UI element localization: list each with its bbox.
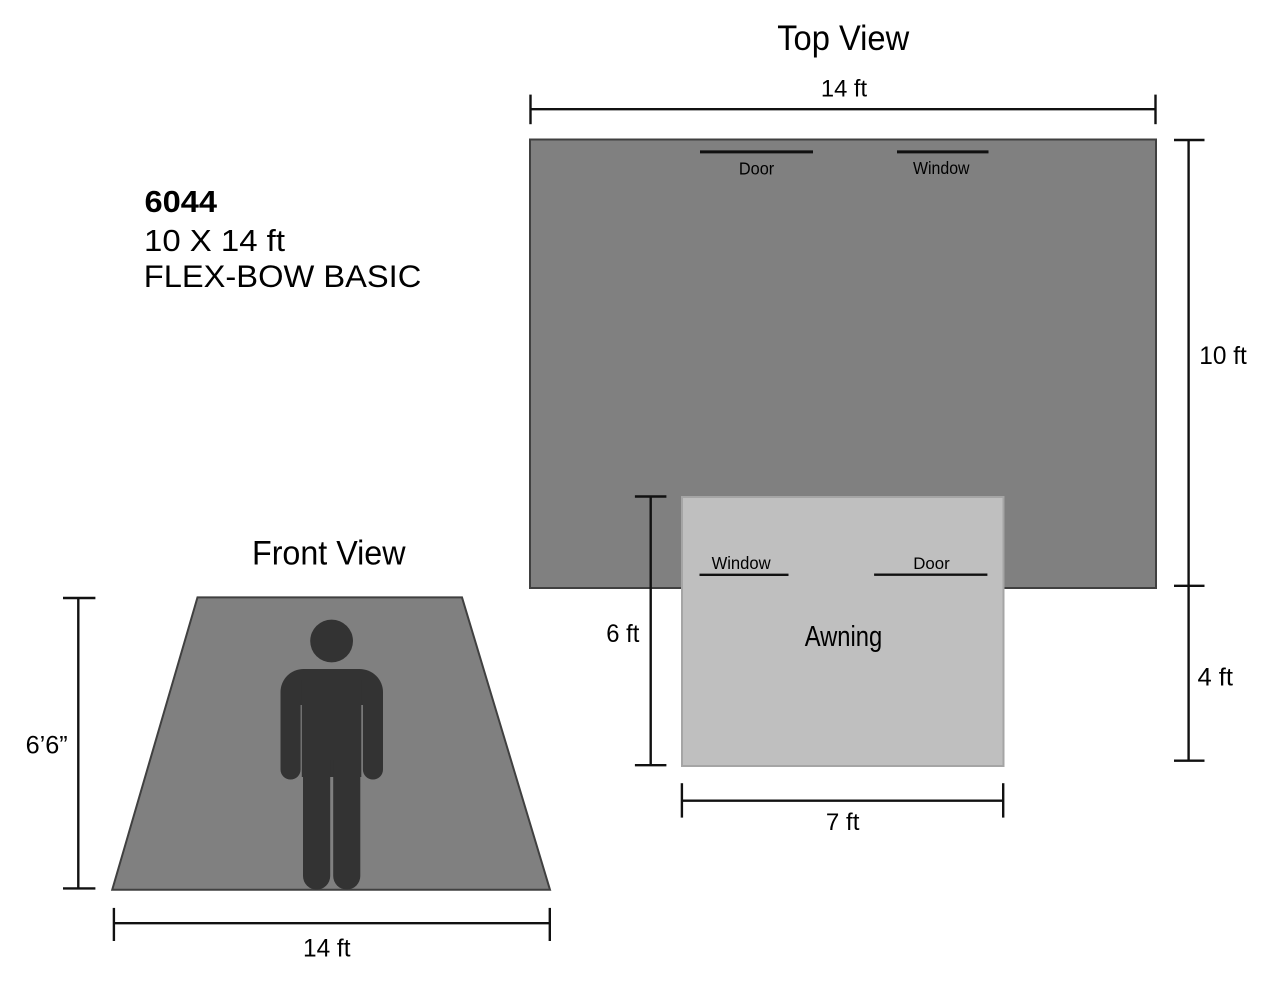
svg-text:Top View: Top View bbox=[777, 18, 909, 58]
svg-text:4 ft: 4 ft bbox=[1198, 665, 1234, 692]
svg-text:6 ft: 6 ft bbox=[606, 621, 639, 648]
svg-text:10 ft: 10 ft bbox=[1199, 343, 1247, 370]
svg-text:14 ft: 14 ft bbox=[303, 934, 351, 962]
svg-text:Front View: Front View bbox=[252, 535, 406, 573]
svg-text:7 ft: 7 ft bbox=[826, 809, 860, 836]
svg-text:10 X 14 ft: 10 X 14 ft bbox=[144, 224, 286, 258]
svg-text:6’6”: 6’6” bbox=[26, 732, 68, 760]
svg-text:Window: Window bbox=[913, 158, 970, 178]
svg-text:Awning: Awning bbox=[805, 621, 883, 653]
svg-text:14 ft: 14 ft bbox=[821, 76, 867, 103]
svg-text:Window: Window bbox=[712, 553, 771, 573]
svg-text:6044: 6044 bbox=[145, 184, 218, 219]
svg-text:FLEX-BOW BASIC: FLEX-BOW BASIC bbox=[144, 259, 422, 294]
svg-text:Door: Door bbox=[913, 554, 950, 573]
svg-text:Door: Door bbox=[739, 158, 774, 178]
